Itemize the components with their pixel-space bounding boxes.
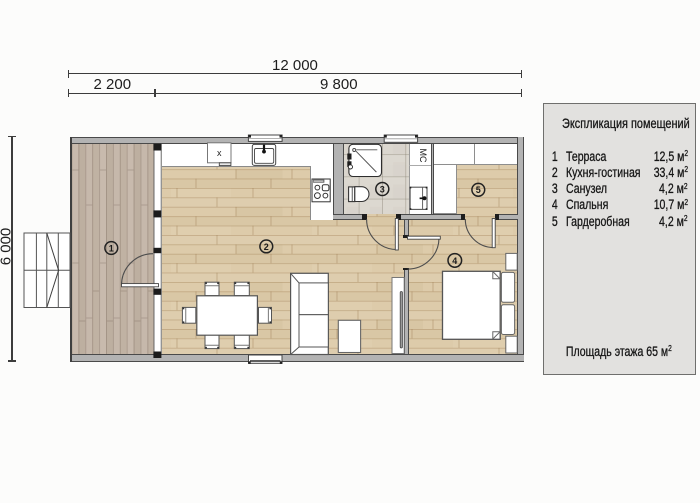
svg-text:3: 3 — [380, 184, 385, 194]
svg-text:2: 2 — [264, 242, 269, 252]
svg-text:1: 1 — [109, 243, 114, 253]
svg-text:5: 5 — [476, 185, 481, 195]
svg-text:4: 4 — [452, 256, 457, 266]
